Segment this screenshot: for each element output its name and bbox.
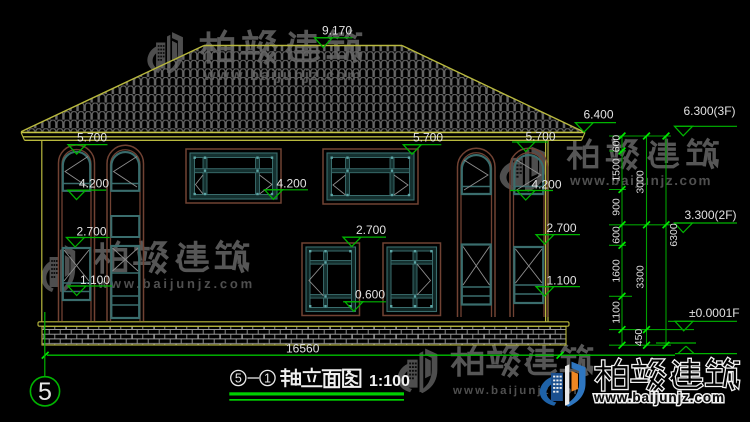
- svg-text:3300: 3300: [635, 265, 647, 289]
- svg-text:www.baijunjz.com: www.baijunjz.com: [593, 390, 725, 405]
- svg-text:0.600: 0.600: [355, 287, 385, 301]
- svg-text:3000: 3000: [635, 170, 647, 194]
- svg-text:3.300(2F): 3.300(2F): [685, 208, 737, 222]
- svg-text:2.700: 2.700: [547, 221, 577, 235]
- svg-text:1.100: 1.100: [80, 273, 110, 287]
- svg-text:1:100: 1:100: [369, 373, 410, 390]
- svg-text:1100: 1100: [611, 301, 623, 324]
- svg-text:5.700: 5.700: [413, 131, 443, 145]
- svg-text:16560: 16560: [286, 341, 320, 355]
- svg-text:4.200: 4.200: [277, 177, 307, 191]
- svg-text:4.200: 4.200: [79, 177, 109, 191]
- svg-text:1: 1: [264, 371, 271, 385]
- svg-text:2.700: 2.700: [77, 225, 107, 239]
- svg-text:9.170: 9.170: [322, 24, 352, 38]
- svg-text:1.100: 1.100: [547, 273, 577, 287]
- svg-text:www.baijunjz.com: www.baijunjz.com: [97, 276, 255, 291]
- svg-text:5.700: 5.700: [526, 130, 556, 144]
- svg-text:5: 5: [38, 378, 52, 406]
- svg-text:1500: 1500: [611, 158, 623, 182]
- svg-text:6300: 6300: [668, 223, 680, 247]
- svg-text:900: 900: [611, 198, 623, 216]
- svg-text:2.700: 2.700: [356, 223, 386, 237]
- svg-text:±0.0001F: ±0.0001F: [689, 306, 740, 320]
- svg-text:1600: 1600: [611, 259, 623, 283]
- svg-text:450: 450: [633, 329, 645, 347]
- svg-text:4.200: 4.200: [532, 178, 562, 192]
- svg-text:6.400: 6.400: [584, 108, 614, 122]
- svg-text:5.700: 5.700: [77, 130, 107, 144]
- svg-text:5: 5: [235, 371, 242, 385]
- svg-text:600: 600: [611, 135, 623, 153]
- svg-text:600: 600: [611, 226, 623, 244]
- svg-text:6.300(3F): 6.300(3F): [684, 104, 736, 118]
